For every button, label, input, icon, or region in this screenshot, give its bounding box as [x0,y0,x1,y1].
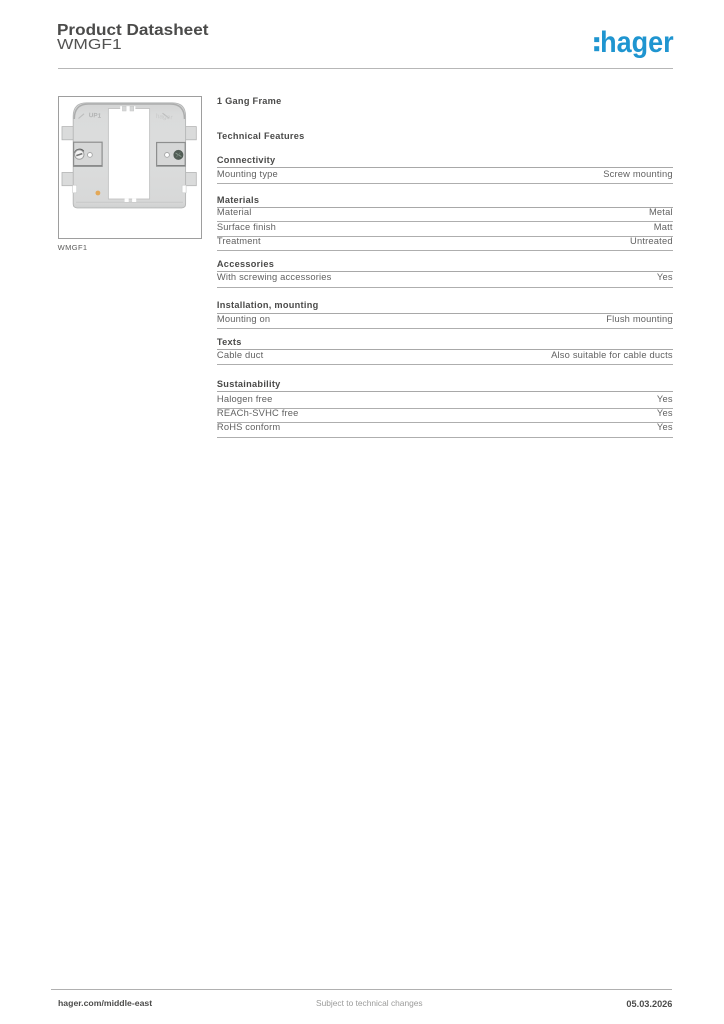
svg-text:hager: hager [600,28,674,58]
svg-text:UP1: UP1 [88,112,101,120]
